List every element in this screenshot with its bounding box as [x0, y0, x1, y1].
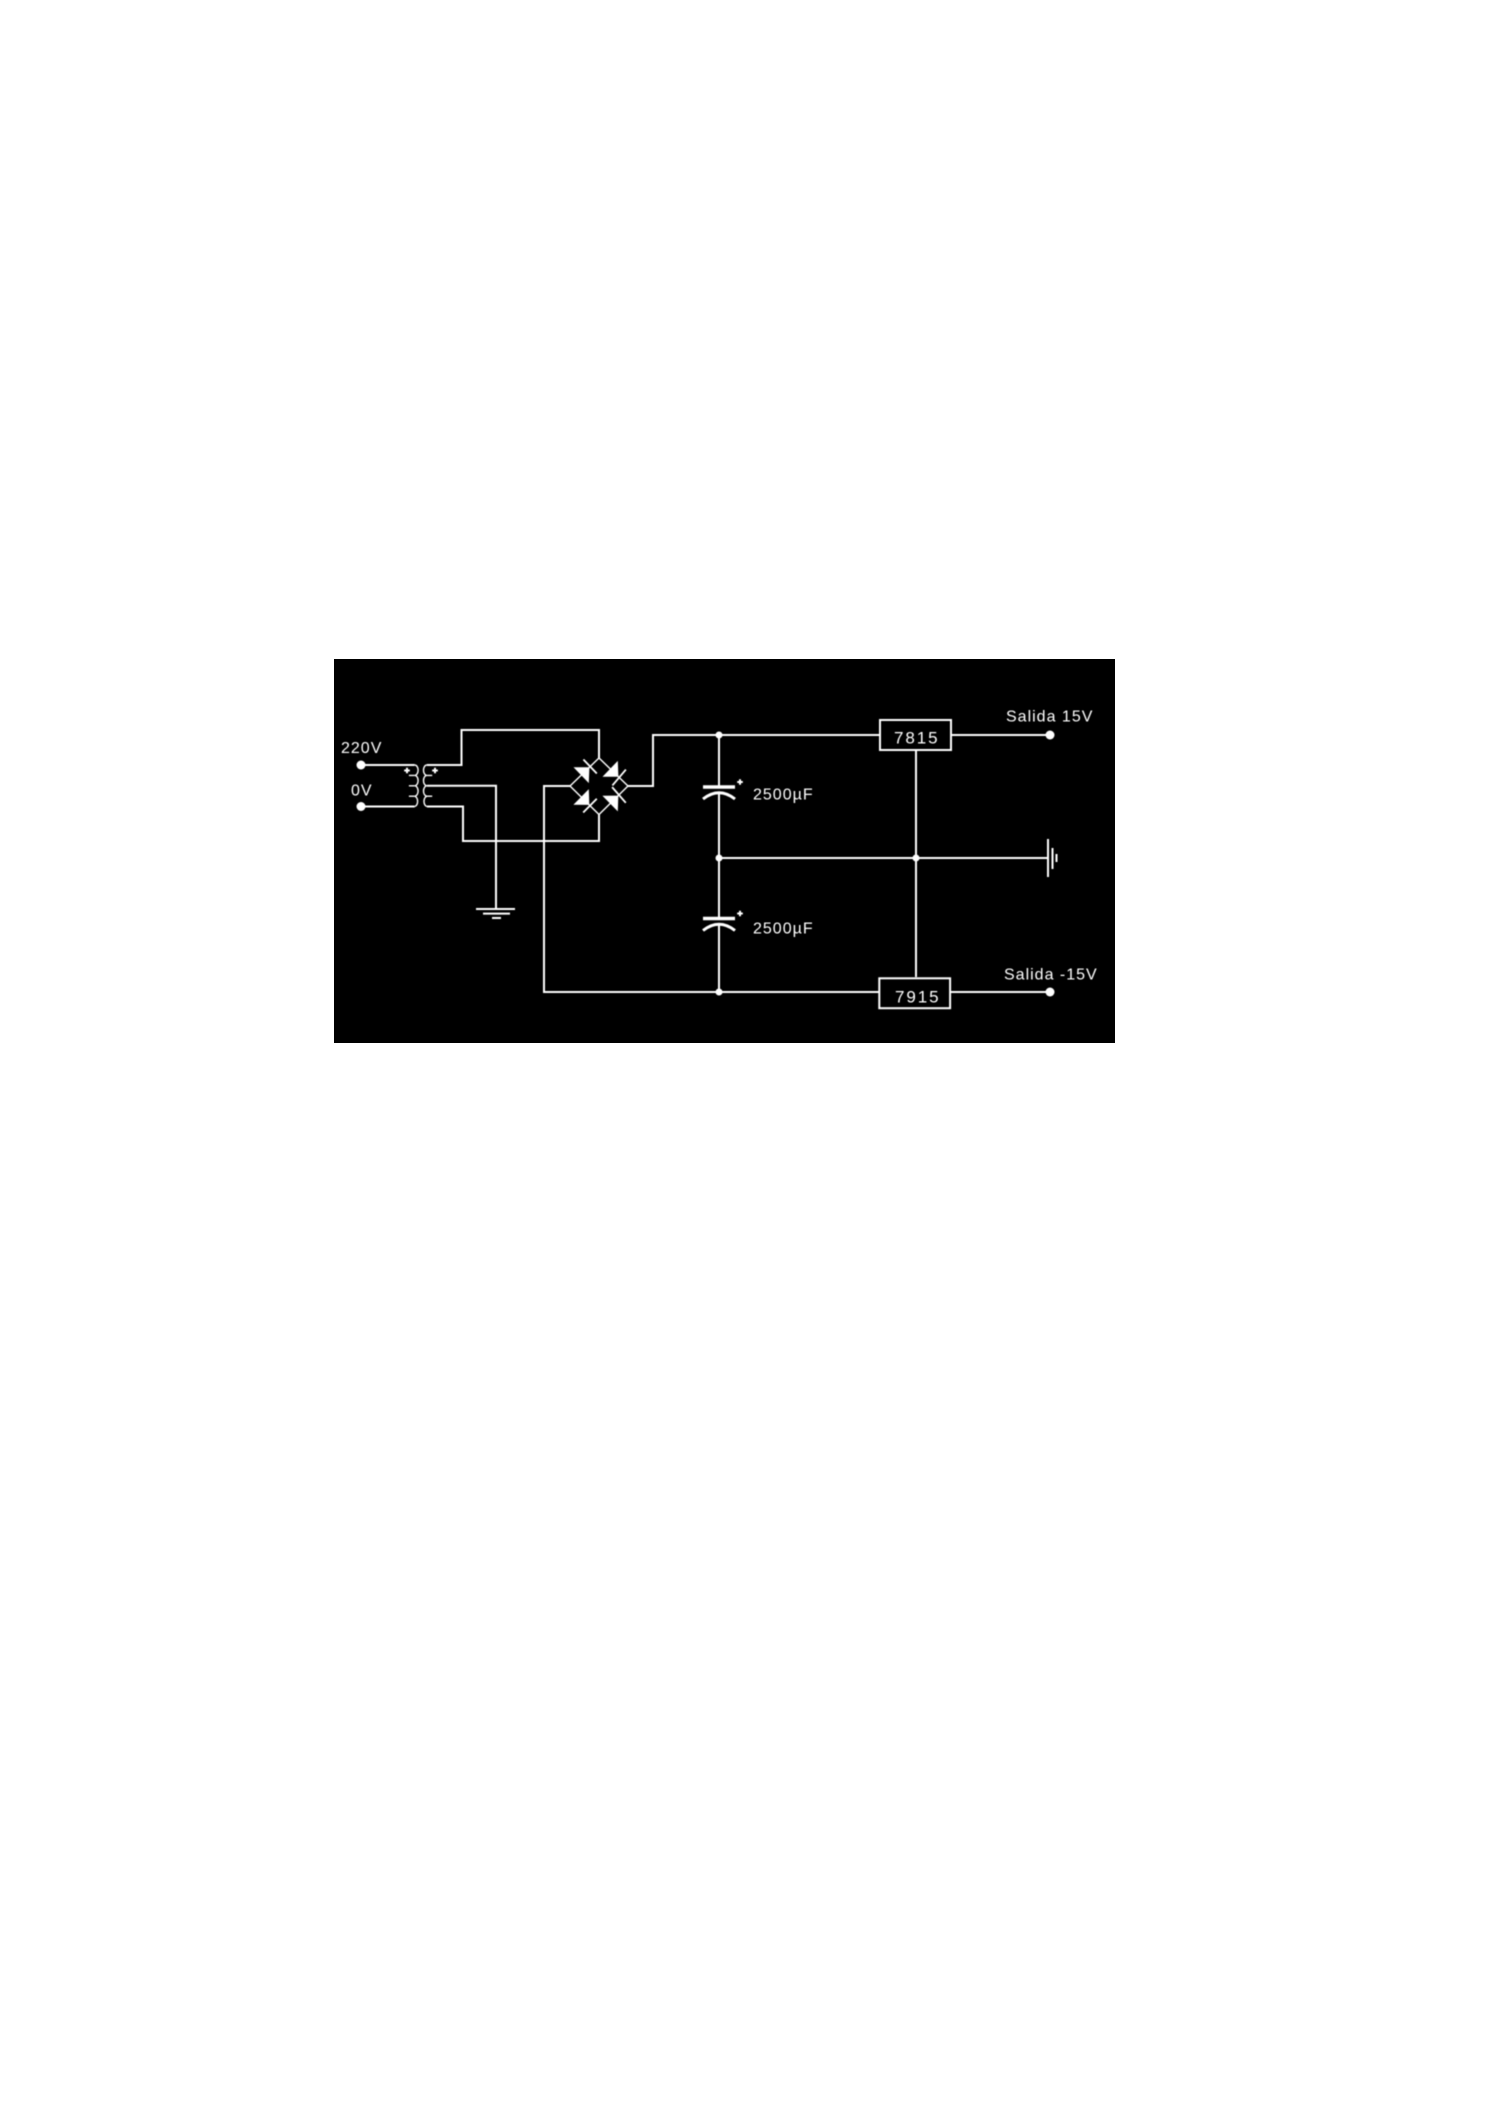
- svg-text:Salida -15V: Salida -15V: [1004, 967, 1098, 984]
- svg-text:220V: 220V: [341, 740, 382, 757]
- svg-text:7815: 7815: [894, 729, 939, 748]
- svg-text:2500µF: 2500µF: [753, 921, 814, 938]
- svg-text:2500µF: 2500µF: [753, 787, 814, 804]
- svg-text:0V: 0V: [351, 783, 373, 800]
- svg-text:Salida 15V: Salida 15V: [1006, 709, 1093, 726]
- svg-text:7915: 7915: [895, 988, 940, 1007]
